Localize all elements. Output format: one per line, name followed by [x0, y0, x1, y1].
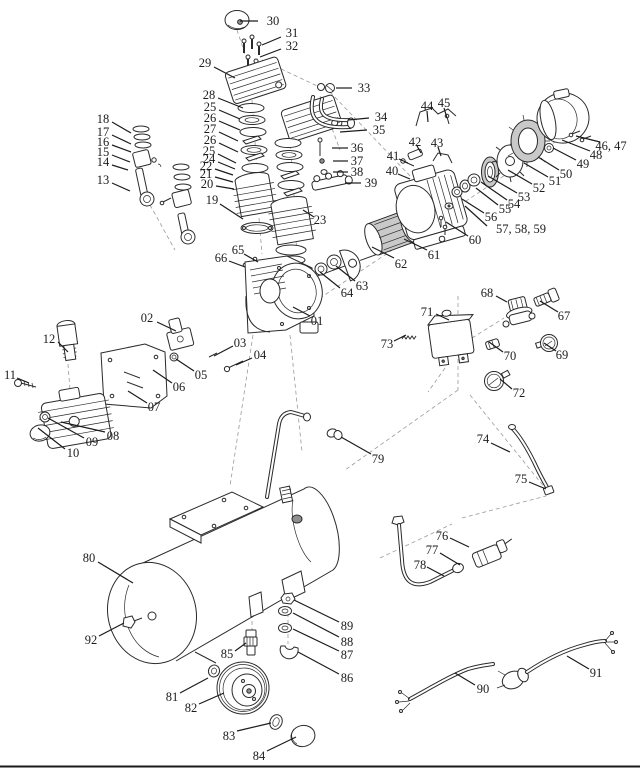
part-number-label: 92 — [85, 633, 98, 647]
part-number-label: 30 — [267, 14, 280, 28]
callout-leader-line — [562, 140, 590, 151]
part-number-label: 74 — [477, 432, 490, 446]
part-number-label: 75 — [515, 472, 528, 486]
part-number-label: 06 — [173, 380, 186, 394]
part-number-label: 82 — [185, 701, 198, 715]
part-number-label: 61 — [428, 248, 441, 262]
callout-leader-line — [215, 169, 233, 175]
part-76-78-check-valve-pipe — [392, 516, 517, 584]
callout-leader-line — [398, 174, 410, 179]
part-number-label: 43 — [431, 136, 444, 150]
part-87-89-axle-hardware — [279, 593, 296, 633]
part-number-label: 72 — [513, 386, 526, 400]
part-33-elbow-fitting — [318, 84, 335, 93]
parts-diagram-page: 3031322933343528252627262524222120191817… — [0, 0, 640, 768]
part-07-backing-plate — [101, 344, 167, 408]
part-number-label: 41 — [387, 149, 400, 163]
part-number-label: 60 — [469, 233, 482, 247]
callout-leader-line — [218, 162, 235, 169]
part-number-label: 62 — [395, 257, 408, 271]
part-number-label: 57, 58, 59 — [496, 222, 546, 236]
part-number-label: 32 — [286, 39, 299, 53]
callout-leader-line — [260, 49, 281, 57]
callout-leader-line — [215, 177, 233, 182]
callout-leader-line — [180, 678, 208, 693]
callout-leader-line — [112, 183, 130, 191]
callout-leader-line — [267, 737, 296, 751]
callout-leader-line — [320, 272, 340, 288]
part-number-label: 86 — [341, 671, 354, 685]
callout-leader-line — [567, 656, 589, 669]
part-number-label: 55 — [499, 202, 512, 216]
callout-leader-line — [219, 110, 240, 119]
part-11-bolt — [15, 380, 37, 389]
part-number-label: 69 — [556, 348, 569, 362]
part-number-label: 49 — [577, 157, 590, 171]
callout-leader-line — [219, 143, 238, 152]
part-number-label: 10 — [67, 446, 80, 460]
callout-leader-line — [491, 443, 510, 452]
part-number-label: 14 — [97, 155, 110, 169]
callout-leader-line — [540, 301, 558, 312]
part-number-label: 76 — [436, 529, 449, 543]
part-83-retaining-ring — [268, 713, 285, 731]
part-67-fitting — [533, 288, 560, 309]
part-number-label: 63 — [356, 279, 369, 293]
part-number-label: 88 — [341, 635, 354, 649]
part-tank-handle — [267, 412, 311, 497]
diagram-canvas: 3031322933343528252627262524222120191817… — [0, 0, 640, 768]
callout-leader-line — [476, 188, 498, 205]
part-number-label: 12 — [43, 332, 56, 346]
part-number-label: 52 — [533, 181, 546, 195]
part-91-power-cord — [497, 632, 618, 693]
part-number-label: 66 — [215, 251, 228, 265]
callout-leader-line — [218, 154, 236, 163]
part-12-filter-element — [56, 319, 79, 361]
part-number-label: 78 — [414, 558, 427, 572]
part-30-breather-cap — [225, 11, 249, 30]
part-number-label: 50 — [560, 167, 573, 181]
part-29-cylinder-head-left — [224, 56, 287, 104]
part-number-label: 91 — [590, 666, 603, 680]
part-85-drain-valve — [244, 630, 257, 655]
callout-leader-line — [112, 135, 131, 144]
callout-leader-line — [455, 673, 475, 685]
callout-leader-line — [112, 155, 130, 162]
part-number-label: 08 — [107, 429, 120, 443]
part-number-label: 87 — [341, 648, 354, 662]
part-number-label: 90 — [477, 682, 490, 696]
part-number-label: 45 — [438, 96, 451, 110]
part-number-label: 89 — [341, 619, 354, 633]
part-number-label: 23 — [314, 213, 327, 227]
part-number-label: 81 — [166, 690, 179, 704]
part-number-label: 13 — [97, 173, 110, 187]
part-number-label: 65 — [232, 243, 245, 257]
part-number-label: 18 — [97, 112, 110, 126]
part-number-label: 48 — [590, 148, 603, 162]
callout-leader-line — [553, 148, 576, 160]
part-23-cylinder-right — [266, 194, 317, 246]
part-86-clip — [280, 646, 298, 659]
part-number-label: 29 — [199, 56, 212, 70]
callout-leader-line — [229, 261, 245, 267]
part-number-label: 73 — [381, 337, 394, 351]
callout-leader-line — [427, 567, 444, 576]
part-72-gauge — [485, 370, 510, 390]
callout-leader-line — [340, 130, 367, 132]
callout-leader-line — [176, 359, 194, 371]
callout-leader-line — [219, 121, 240, 130]
part-82-wheel — [217, 662, 269, 714]
part-number-label: 11 — [4, 368, 16, 382]
part-number-label: 71 — [421, 305, 434, 319]
part-number-label: 07 — [148, 400, 161, 414]
part-69-gauge — [536, 335, 558, 352]
part-number-label: 35 — [373, 123, 386, 137]
part-number-label: 85 — [221, 647, 234, 661]
callout-leader-line — [394, 335, 406, 341]
part-number-label: 44 — [421, 99, 434, 113]
callout-leader-line — [216, 186, 234, 189]
callout-leader-line — [298, 652, 339, 674]
callout-leader-line — [293, 613, 339, 637]
part-80-air-tank — [96, 486, 339, 674]
part-79-plug — [326, 428, 343, 441]
part-71-pressure-switch — [426, 307, 479, 367]
part-number-label: 77 — [426, 543, 439, 557]
callout-leader-line — [112, 145, 131, 152]
part-number-label: 80 — [83, 551, 96, 565]
part-number-label: 04 — [254, 348, 267, 362]
callout-leader-line — [262, 37, 281, 45]
part-number-label: 83 — [223, 729, 236, 743]
part-number-label: 03 — [234, 336, 247, 350]
part-gasket-stack-right — [275, 139, 304, 197]
part-number-label: 33 — [358, 81, 371, 95]
part-19-base-gasket — [241, 223, 273, 234]
callout-leader-line — [294, 600, 339, 622]
part-number-label: 39 — [365, 176, 378, 190]
part-number-label: 67 — [558, 309, 571, 323]
part-number-label: 36 — [351, 141, 364, 155]
callout-leader-line — [496, 296, 507, 302]
callout-leader-line — [235, 643, 246, 651]
callout-leader-line — [524, 163, 548, 177]
part-84-hub-cap — [289, 723, 317, 749]
part-number-label: 51 — [549, 174, 562, 188]
callout-leader-line — [538, 157, 559, 170]
callout-leader-line — [293, 629, 339, 651]
callout-leader-line — [450, 538, 469, 547]
callout-leader-line — [219, 132, 238, 141]
part-13-18-piston-rod-a — [132, 126, 161, 206]
part-42-43-brackets — [407, 149, 452, 163]
callout-leader-line — [112, 122, 131, 133]
part-number-label: 84 — [253, 749, 266, 763]
part-number-label: 02 — [141, 311, 154, 325]
part-number-label: 05 — [195, 368, 208, 382]
part-number-label: 19 — [206, 193, 219, 207]
callout-leader-line — [465, 206, 487, 226]
part-number-label: 64 — [341, 286, 354, 300]
callout-leader-line — [214, 346, 233, 356]
part-number-label: 70 — [504, 349, 517, 363]
part-number-label: 09 — [86, 435, 99, 449]
part-number-label: 68 — [481, 286, 494, 300]
part-number-label: 01 — [311, 314, 324, 328]
callout-leader-line — [112, 165, 128, 170]
callout-leader-line — [440, 553, 460, 565]
part-number-label: 40 — [386, 164, 399, 178]
part-81-washer — [207, 664, 221, 679]
part-49-bearing — [545, 144, 554, 153]
callout-leader-line — [236, 358, 252, 365]
part-number-label: 79 — [372, 452, 385, 466]
part-68-regulator — [503, 295, 535, 327]
part-number-label: 20 — [201, 177, 214, 191]
part-number-label: 42 — [409, 135, 422, 149]
part-number-label: 38 — [351, 165, 364, 179]
callout-leader-line — [341, 437, 371, 454]
callout-leader-line — [237, 723, 271, 731]
part-number-label: 34 — [375, 110, 388, 124]
part-number-label: 31 — [286, 26, 299, 40]
